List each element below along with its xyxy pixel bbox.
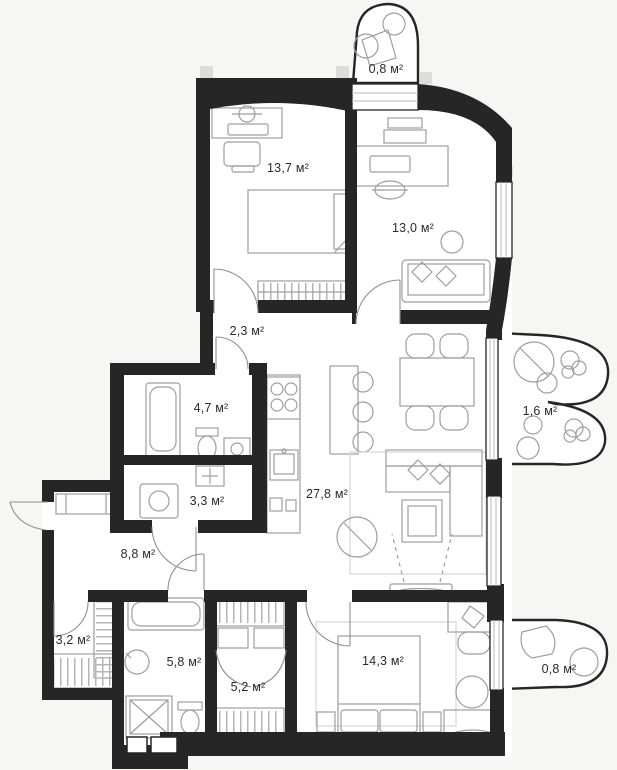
- area-label-kitchen-living: 27,8 м²: [306, 487, 348, 501]
- area-label-office: 13,0 м²: [392, 221, 434, 235]
- shafts: [127, 737, 177, 753]
- area-label-bathroom-lower: 5,8 м²: [167, 655, 202, 669]
- area-label-hallway: 2,3 м²: [230, 324, 265, 338]
- area-label-corridor: 8,8 м²: [121, 547, 156, 561]
- area-label-balcony-top: 0,8 м²: [369, 62, 404, 76]
- area-label-bathroom-upper: 4,7 м²: [194, 401, 229, 415]
- area-label-balcony-right: 1,6 м²: [523, 404, 558, 418]
- area-label-closet: 3,2 м²: [56, 633, 91, 647]
- area-label-bedroom-lower: 14,3 м²: [362, 654, 404, 668]
- area-label-bedroom-upper: 13,7 м²: [267, 161, 309, 175]
- floor-plan-drawing: [0, 0, 617, 770]
- area-label-wardrobe: 5,2 м²: [231, 680, 266, 694]
- floor-plan: 0,8 м² 13,7 м² 13,0 м² 2,3 м² 4,7 м² 1,6…: [0, 0, 617, 770]
- balcony-bottom-outline: [504, 620, 607, 689]
- area-label-laundry: 3,3 м²: [190, 494, 225, 508]
- area-label-balcony-bottom: 0,8 м²: [542, 662, 577, 676]
